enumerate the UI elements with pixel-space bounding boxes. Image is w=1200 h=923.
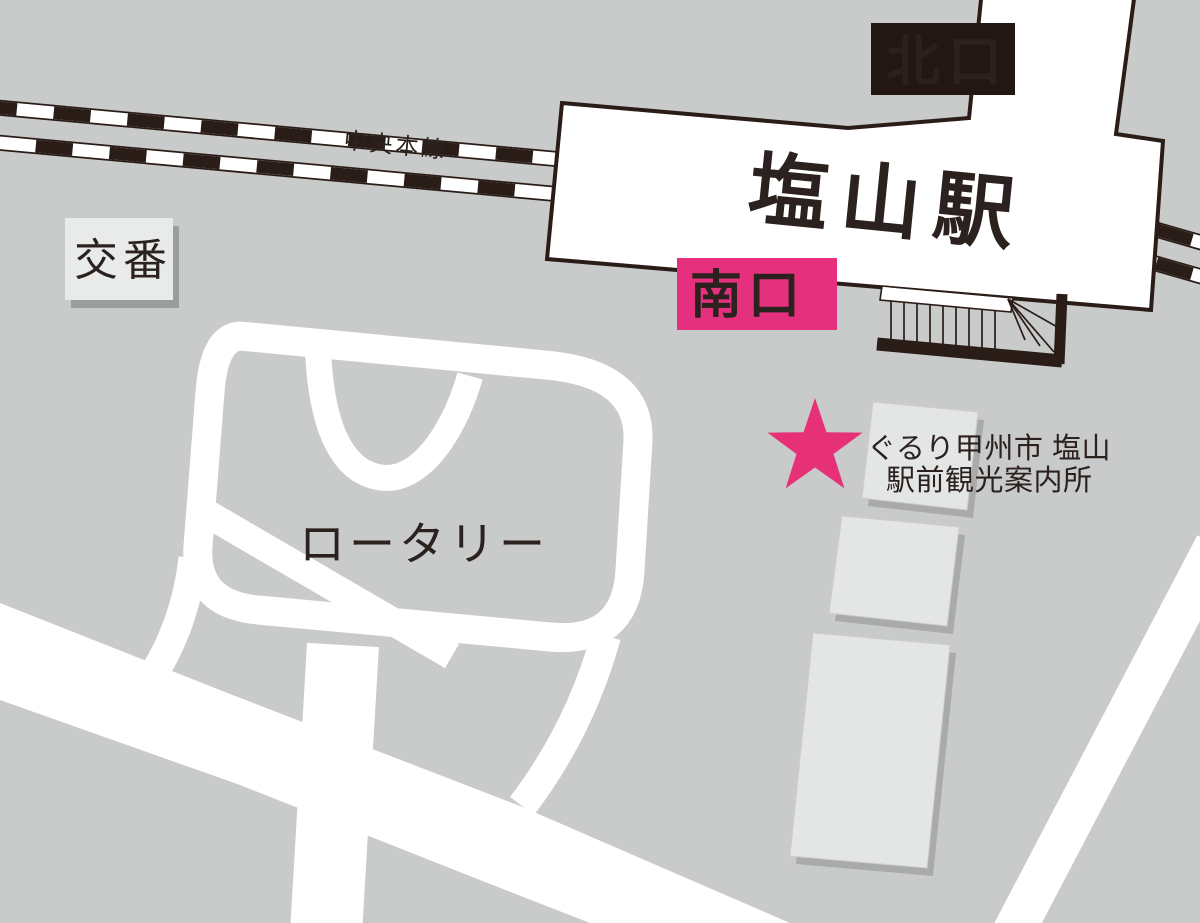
south-exit-label: 南口 [690, 267, 806, 325]
stairs-right-wall [1059, 294, 1062, 364]
north-exit-badge: 北口 [871, 23, 1015, 95]
building-2 [829, 516, 959, 626]
station-area-map: 中央本線 交番 [0, 0, 1200, 923]
tourist-info-line2: 駅前観光案内所 [886, 464, 1093, 497]
building-3 [790, 633, 950, 868]
police-box-label: 交番 [74, 236, 172, 285]
south-road [326, 645, 343, 923]
north-exit-label: 北口 [886, 32, 1010, 92]
tourist-info-line1: ぐるり甲州市 塩山 [867, 432, 1111, 465]
police-box: 交番 [65, 218, 179, 308]
tourist-info-label: ぐるり甲州市 塩山 駅前観光案内所 [867, 432, 1111, 497]
rotary-label: ロータリー [299, 518, 549, 570]
south-exit-badge: 南口 [677, 258, 837, 330]
